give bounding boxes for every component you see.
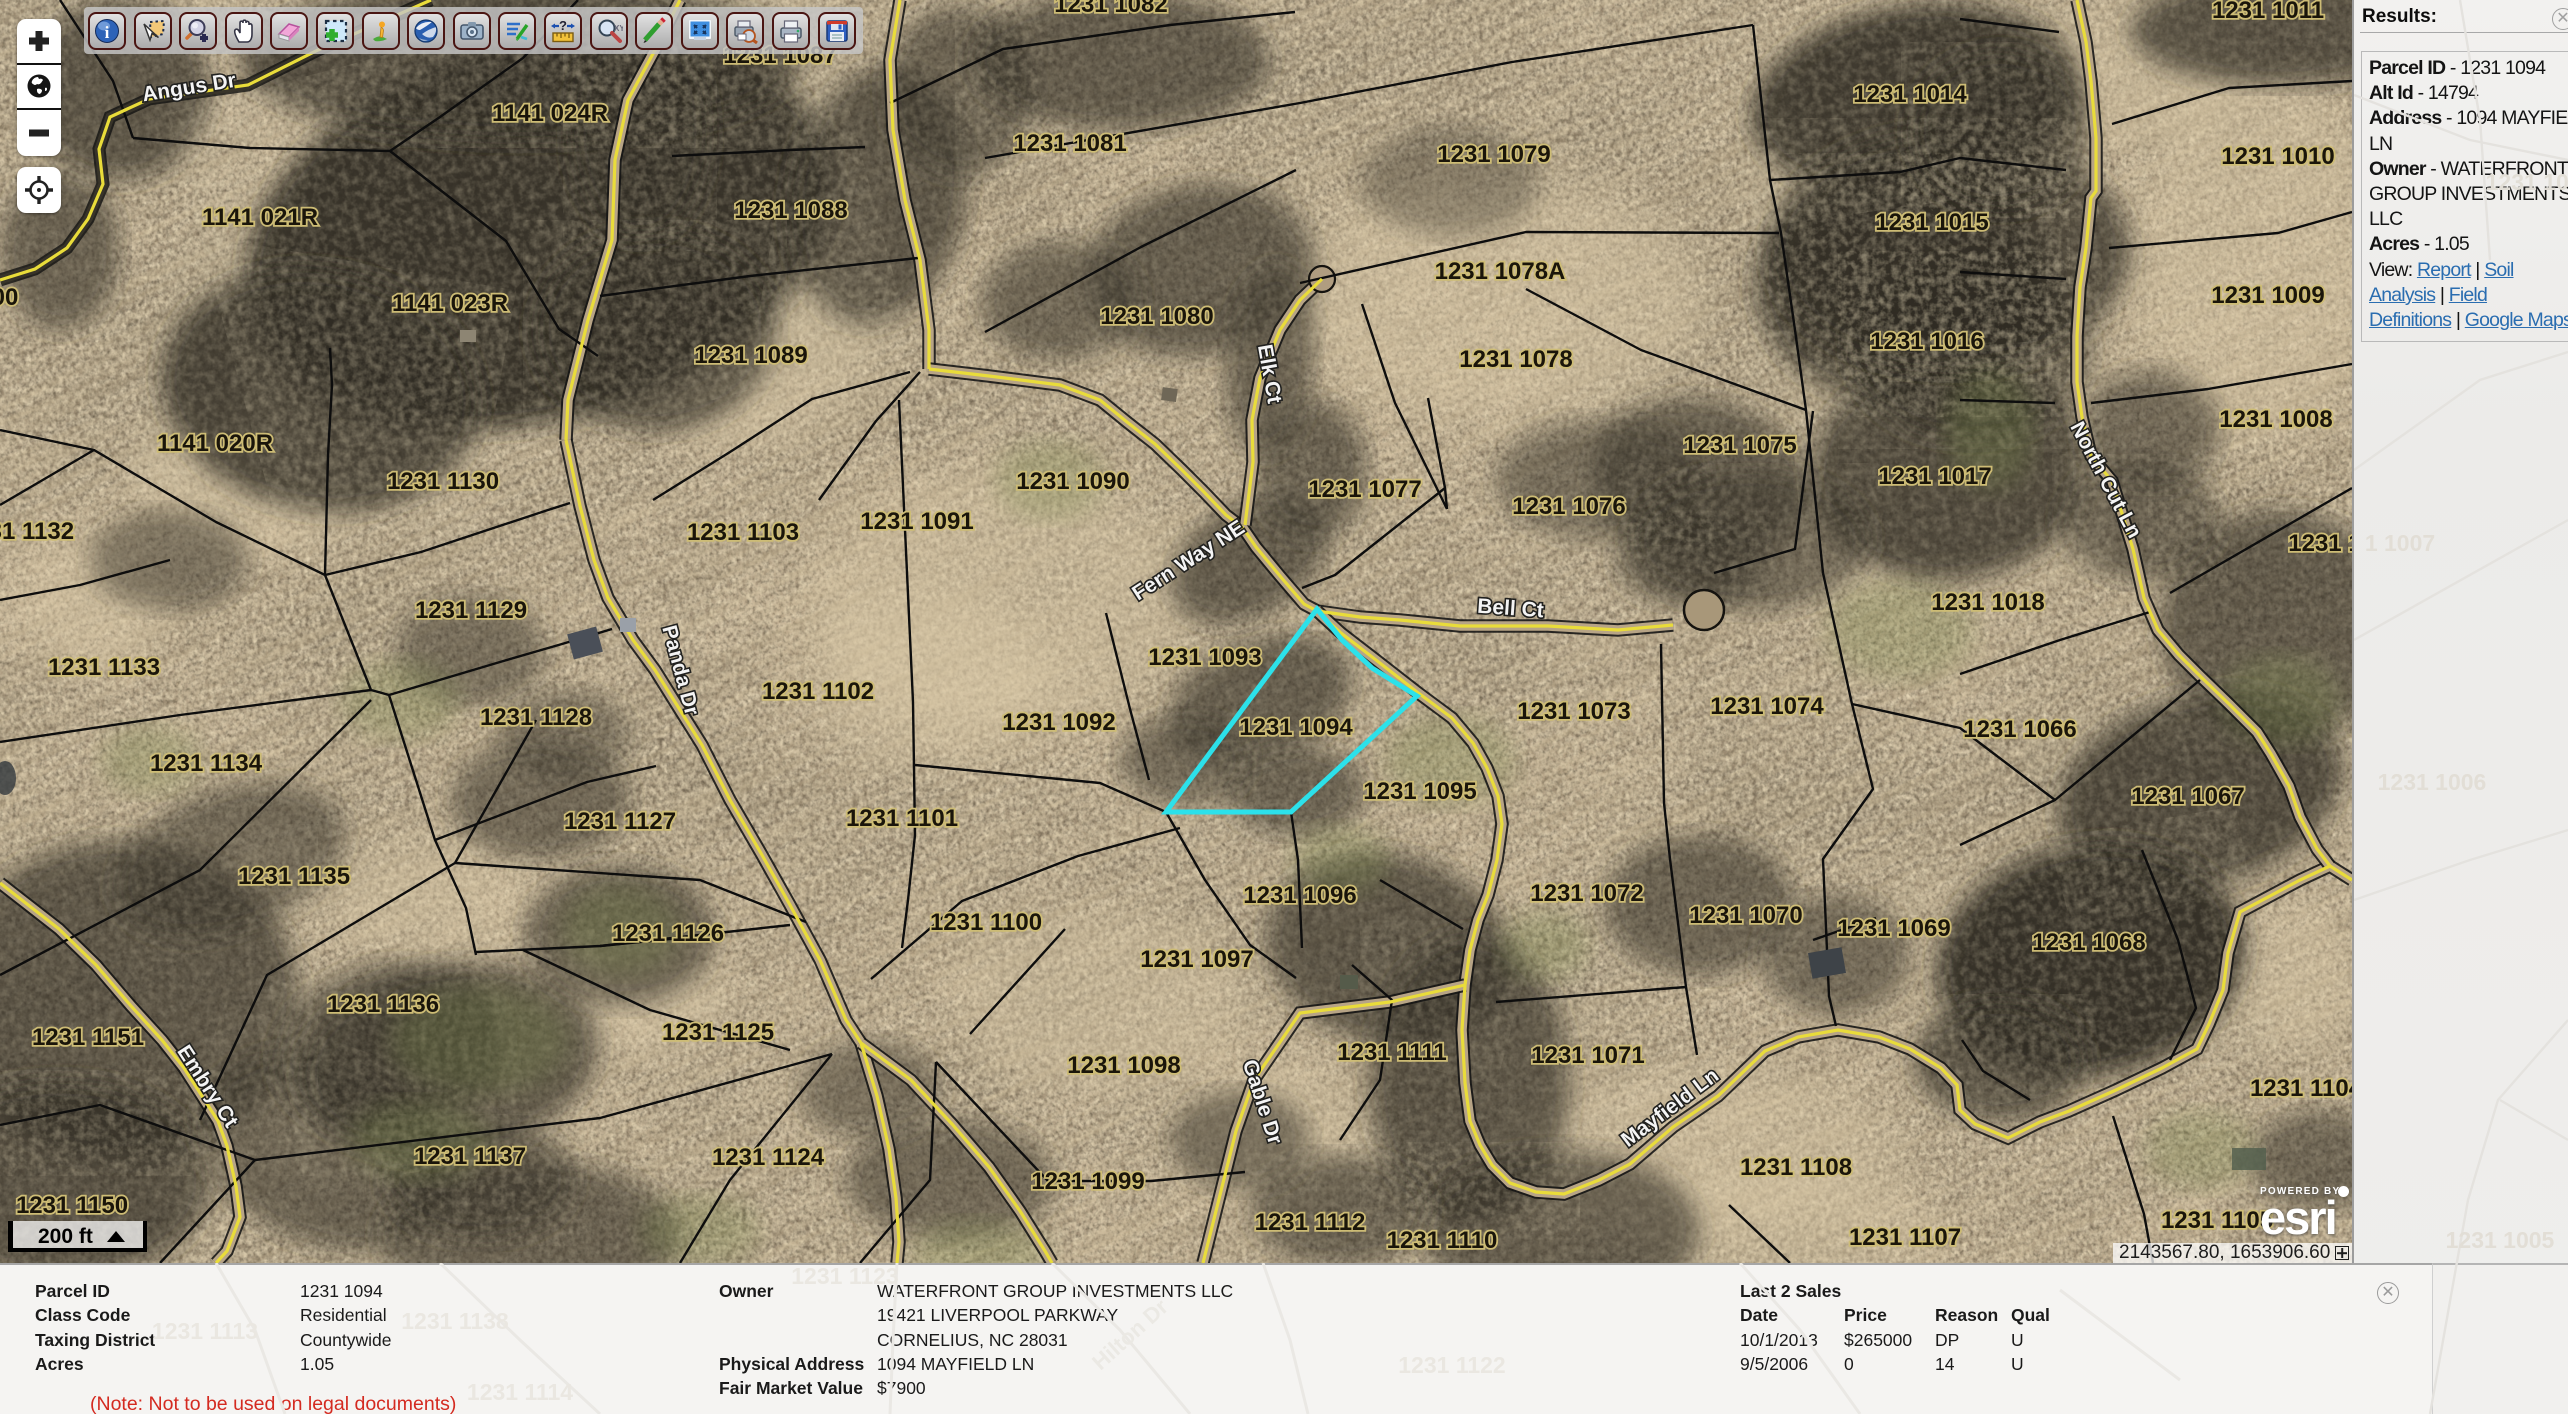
- svg-text:1231 1114: 1231 1114: [467, 1379, 573, 1405]
- svg-text:1231 1014: 1231 1014: [1853, 81, 1967, 108]
- svg-text:1231 1005: 1231 1005: [2446, 1227, 2555, 1253]
- svg-text:1231 1129: 1231 1129: [415, 597, 527, 624]
- svg-text:1231 1008: 1231 1008: [2219, 406, 2332, 433]
- svg-text:1231 1101: 1231 1101: [846, 805, 958, 832]
- svg-text:1 1007: 1 1007: [2365, 530, 2435, 556]
- svg-text:1231 1078A: 1231 1078A: [1435, 258, 1566, 285]
- svg-text:1231 1124: 1231 1124: [712, 1144, 825, 1171]
- svg-text:1231 1090: 1231 1090: [1016, 468, 1129, 495]
- svg-text:1231 1006: 1231 1006: [2378, 769, 2487, 795]
- svg-text:1231 1011: 1231 1011: [2212, 0, 2324, 24]
- svg-text:1231 1095: 1231 1095: [1363, 778, 1476, 805]
- svg-text:1231 1019: 1231 1019: [2486, 169, 2568, 195]
- svg-text:1231 1015: 1231 1015: [1875, 209, 1988, 236]
- svg-text:1231 1092: 1231 1092: [1002, 709, 1115, 736]
- svg-text:1231 1081: 1231 1081: [1013, 130, 1126, 157]
- svg-text:1231 1137: 1231 1137: [414, 1143, 526, 1170]
- svg-text:1231 1130: 1231 1130: [387, 468, 499, 495]
- svg-text:1231 1070: 1231 1070: [1689, 902, 1802, 929]
- svg-text:1231 1078: 1231 1078: [1459, 346, 1572, 373]
- svg-text:1231 1127: 1231 1127: [564, 808, 676, 835]
- svg-text:1141 023R: 1141 023R: [392, 290, 508, 317]
- svg-text:Hilton Dr: Hilton Dr: [1087, 1294, 1173, 1375]
- svg-text:1231 1066: 1231 1066: [1963, 716, 2076, 743]
- svg-text:1231 1082: 1231 1082: [1054, 0, 1167, 18]
- svg-text:1231 1136: 1231 1136: [327, 991, 439, 1018]
- svg-text:1231 1075: 1231 1075: [1683, 432, 1796, 459]
- svg-text:1231 1151: 1231 1151: [32, 1024, 144, 1051]
- svg-text:1231 1018: 1231 1018: [1931, 589, 2044, 616]
- svg-text:1231 1113: 1231 1113: [152, 1318, 258, 1344]
- svg-text:1231 1009: 1231 1009: [2211, 282, 2324, 309]
- svg-text:XY: XY: [614, 24, 623, 33]
- svg-text:1231 1098: 1231 1098: [1067, 1052, 1180, 1079]
- svg-text:1141 021R: 1141 021R: [202, 204, 318, 231]
- svg-text:1231 1089: 1231 1089: [694, 342, 807, 369]
- svg-text:1231 1093: 1231 1093: [1148, 644, 1261, 671]
- svg-text:1231 1107: 1231 1107: [1849, 1224, 1961, 1251]
- svg-text:1231 1138: 1231 1138: [401, 1308, 509, 1334]
- svg-text:1231 1110: 1231 1110: [1387, 1227, 1498, 1254]
- svg-text:1231 1111: 1231 1111: [1337, 1039, 1446, 1066]
- svg-text:1231 1080: 1231 1080: [1100, 303, 1213, 330]
- svg-text:1231 1099: 1231 1099: [1031, 1168, 1144, 1195]
- svg-text:1231 1017: 1231 1017: [1878, 463, 1991, 490]
- svg-text:1231 1103: 1231 1103: [687, 519, 799, 546]
- svg-text:1231 1102: 1231 1102: [762, 678, 874, 705]
- svg-text:1231 1077: 1231 1077: [1308, 476, 1421, 503]
- svg-text:1231 1134: 1231 1134: [150, 750, 263, 777]
- svg-text:1231 1123: 1231 1123: [791, 1263, 898, 1289]
- svg-text:Bell Ct: Bell Ct: [1476, 595, 1544, 623]
- svg-text:00: 00: [0, 284, 18, 311]
- svg-text:1231 1079: 1231 1079: [1437, 141, 1550, 168]
- svg-text:1231 1091: 1231 1091: [860, 508, 973, 535]
- svg-text:1231 1126: 1231 1126: [612, 920, 724, 947]
- svg-text:1231 1016: 1231 1016: [1870, 328, 1983, 355]
- svg-text:1231 1108: 1231 1108: [1740, 1154, 1852, 1181]
- svg-text:1231 1150: 1231 1150: [16, 1192, 128, 1219]
- svg-text:1231 1133: 1231 1133: [48, 654, 160, 681]
- svg-text:1231 1074: 1231 1074: [1710, 693, 1824, 720]
- svg-text:1231 1105: 1231 1105: [2161, 1207, 2273, 1234]
- svg-text:1231 1088: 1231 1088: [734, 197, 847, 224]
- svg-text:1231 1073: 1231 1073: [1517, 698, 1630, 725]
- svg-text:1231 1125: 1231 1125: [662, 1019, 774, 1046]
- svg-text:1231 1010: 1231 1010: [2221, 143, 2334, 170]
- svg-text:1141 024R: 1141 024R: [492, 100, 608, 127]
- svg-text:1231 1097: 1231 1097: [1140, 946, 1253, 973]
- svg-text:?: ?: [559, 18, 567, 33]
- svg-text:1141 020R: 1141 020R: [157, 430, 273, 457]
- svg-text:1231 1135: 1231 1135: [238, 863, 350, 890]
- svg-text:1231 1068: 1231 1068: [2032, 929, 2145, 956]
- svg-text:i: i: [105, 23, 110, 42]
- svg-text:1231 1104: 1231 1104: [2250, 1075, 2363, 1102]
- svg-text:1231 1112: 1231 1112: [1255, 1209, 1366, 1236]
- svg-text:1231 1100: 1231 1100: [930, 909, 1042, 936]
- svg-text:1231 1072: 1231 1072: [1530, 880, 1643, 907]
- svg-text:1231 1076: 1231 1076: [1512, 493, 1625, 520]
- svg-text:1231 1122: 1231 1122: [1398, 1352, 1505, 1378]
- svg-text:1231 1128: 1231 1128: [480, 704, 592, 731]
- svg-text:1231 1069: 1231 1069: [1837, 915, 1950, 942]
- svg-text:1231 1132: 1231 1132: [0, 518, 74, 545]
- svg-text:1231 1067: 1231 1067: [2131, 783, 2244, 810]
- svg-text:1231 1071: 1231 1071: [1531, 1042, 1644, 1069]
- svg-text:1231 1094: 1231 1094: [1239, 714, 1353, 741]
- svg-text:1231 1096: 1231 1096: [1243, 882, 1356, 909]
